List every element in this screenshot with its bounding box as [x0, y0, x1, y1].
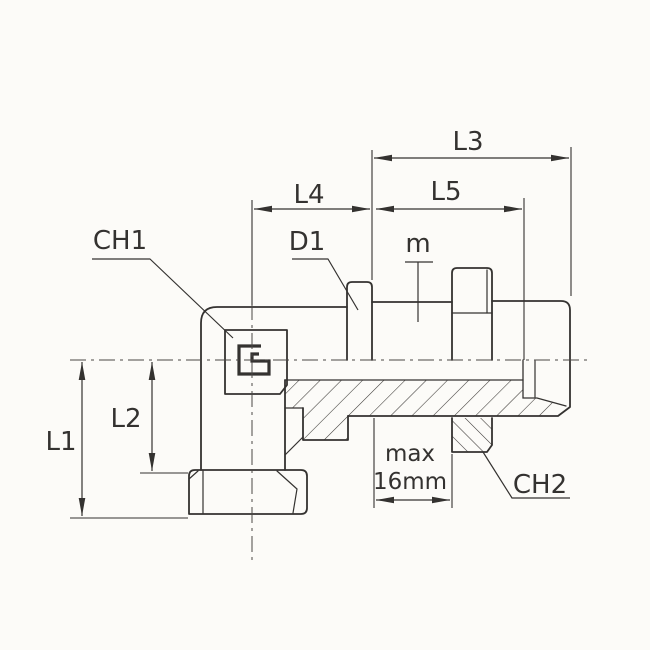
label-max-line1: max [385, 441, 435, 467]
leader-lines [92, 259, 570, 498]
elbow-chamfer [285, 437, 303, 455]
label-l3: L3 [452, 127, 483, 157]
bottom-nut-facet-2 [277, 471, 297, 513]
label-ch1: CH1 [93, 226, 147, 256]
leader-ch1 [92, 259, 233, 338]
cone-collar [347, 282, 372, 360]
locknut-section-hatch [452, 418, 492, 452]
label-l2: L2 [110, 404, 141, 434]
technical-drawing-canvas: L3 L4 L5 CH1 D1 m L1 L2 max 16mm CH2 [0, 0, 650, 650]
bottom-nut [189, 470, 307, 514]
label-d1: D1 [289, 227, 326, 257]
branch-section-hatch [285, 380, 570, 440]
label-max-line2: 16mm [373, 469, 447, 495]
label-ch2: CH2 [513, 470, 567, 500]
label-l4: L4 [293, 180, 324, 210]
locknut-upper [452, 268, 492, 360]
label-m: m [405, 229, 430, 259]
label-l5: L5 [430, 177, 461, 207]
dimension-lines [82, 158, 569, 516]
elbow-fitting-drawing: L3 L4 L5 CH1 D1 m L1 L2 max 16mm CH2 [0, 0, 650, 650]
label-l1: L1 [45, 427, 76, 457]
